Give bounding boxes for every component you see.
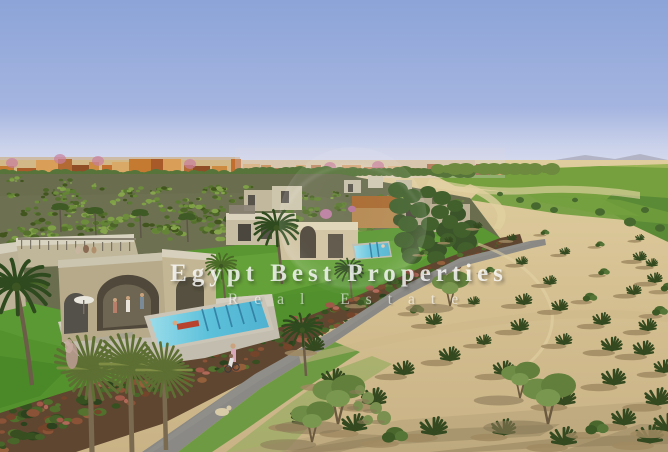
svg-text:Real Estate: Real Estate <box>228 291 474 308</box>
svg-text:Egypt Best Properties: Egypt Best Properties <box>170 260 508 287</box>
